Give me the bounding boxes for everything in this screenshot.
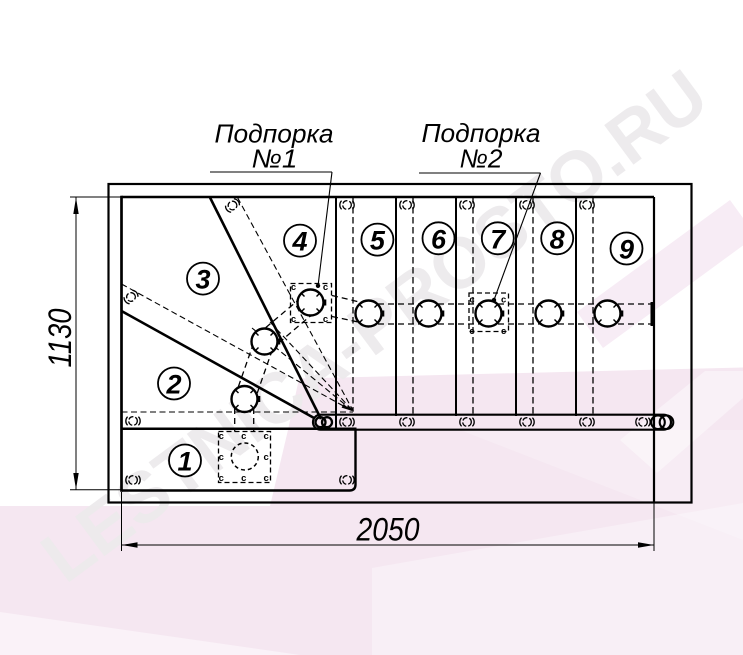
svg-text:4: 4 xyxy=(291,227,307,257)
svg-text:c: c xyxy=(241,473,246,484)
svg-text:c: c xyxy=(323,282,328,293)
svg-text:№1: №1 xyxy=(252,144,298,174)
svg-text:c: c xyxy=(501,295,506,306)
svg-text:1130: 1130 xyxy=(42,308,78,367)
svg-text:5: 5 xyxy=(370,226,386,256)
svg-text:c: c xyxy=(501,326,506,337)
svg-text:2: 2 xyxy=(165,370,181,400)
svg-text:7: 7 xyxy=(490,224,507,254)
svg-text:2050: 2050 xyxy=(356,512,420,548)
svg-text:8: 8 xyxy=(550,224,565,254)
svg-text:c: c xyxy=(469,295,474,306)
svg-text:c: c xyxy=(264,473,269,484)
svg-text:3: 3 xyxy=(195,265,210,295)
svg-text:c: c xyxy=(219,473,224,484)
svg-text:6: 6 xyxy=(431,224,447,254)
svg-text:c: c xyxy=(264,452,269,463)
svg-text:9: 9 xyxy=(619,235,634,265)
svg-text:c: c xyxy=(469,326,474,337)
svg-text:c: c xyxy=(323,314,328,325)
svg-text:c: c xyxy=(291,314,296,325)
svg-text:№2: №2 xyxy=(460,144,504,174)
svg-text:c: c xyxy=(219,431,224,442)
svg-text:c: c xyxy=(241,431,246,442)
svg-text:c: c xyxy=(219,452,224,463)
svg-text:1: 1 xyxy=(177,447,192,477)
svg-text:c: c xyxy=(264,431,269,442)
svg-text:c: c xyxy=(291,282,296,293)
